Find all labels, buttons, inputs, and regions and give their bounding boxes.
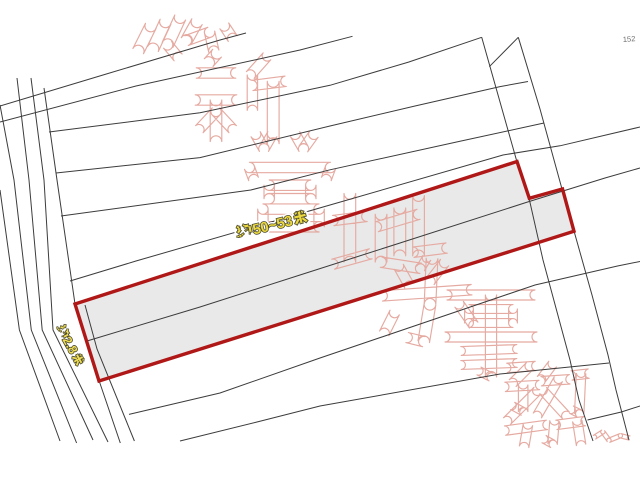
svg-text:152: 152 <box>623 34 636 44</box>
